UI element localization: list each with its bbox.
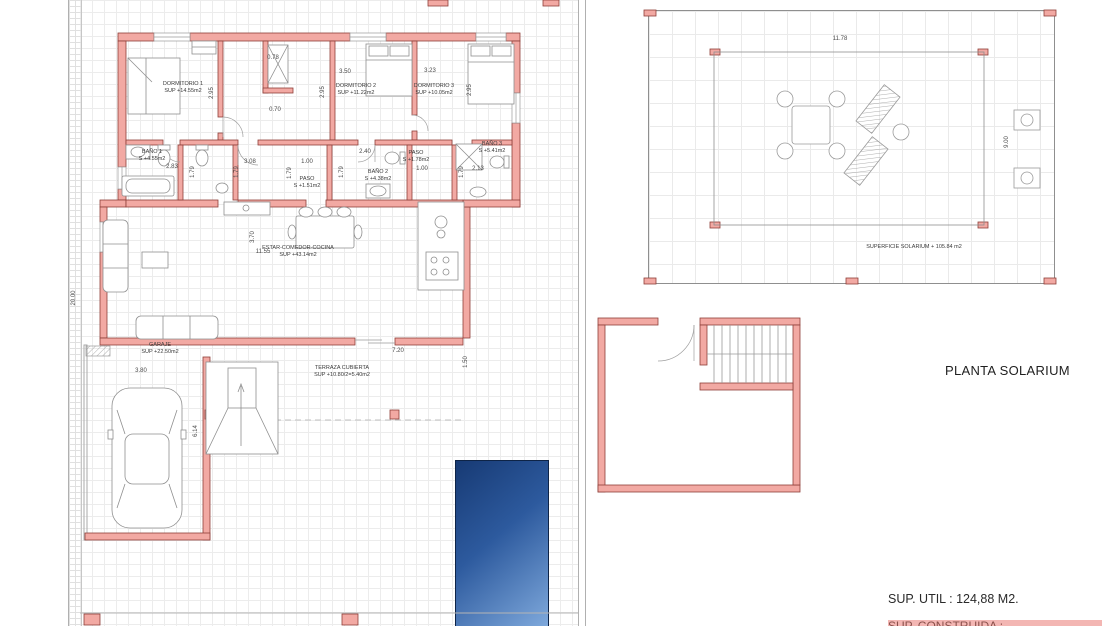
solarium-surface-label: SUPERFICIE SOLARIUM + 105.84 m2: [866, 244, 962, 250]
dimension-label: 3.70: [250, 231, 256, 243]
dimension-label: 1.79: [287, 167, 293, 179]
dimension-label: 0.70: [269, 107, 281, 113]
dimension-label: 2.40: [359, 149, 371, 155]
room-area: S +4.38m2: [365, 176, 392, 183]
dimension-label: 1.79: [339, 166, 345, 178]
dimension-label: 2.83: [166, 164, 178, 170]
room-name: BAÑO 3: [479, 141, 506, 148]
room-label-dormitorio-3: DORMITORIO 3 SUP +10.05m2: [414, 83, 454, 97]
dimension-label: 2.13: [472, 166, 484, 172]
room-name: GARAJE: [141, 342, 178, 349]
sup-util-text: SUP. UTIL : 124,88 M2.: [888, 592, 1019, 606]
dimension-label: 1.79: [459, 166, 465, 178]
dimension-label: 2.95: [320, 86, 326, 98]
room-name: DORMITORIO 2: [336, 83, 376, 90]
plan-title-solarium: PLANTA SOLARIUM: [945, 363, 1070, 378]
furniture-ground-floor: [103, 41, 514, 528]
room-label-paso-1: PASO S +1.51m2: [294, 176, 321, 190]
room-label-garaje: GARAJE SUP +22.50m2: [141, 342, 178, 356]
room-label-bano-3: BAÑO 3 S +5.41m2: [479, 141, 506, 155]
room-label-paso-2: PASO S +1.78m2: [403, 150, 430, 164]
room-name: PASO: [294, 176, 321, 183]
room-label-terraza-cubierta: TERRAZA CUBIERTA SUP +10.80/2=5.40m2: [314, 365, 370, 379]
room-label-bano-2: BAÑO 2 S +4.38m2: [365, 169, 392, 183]
room-area: SUP +10.05m2: [414, 90, 454, 97]
dimension-label: 11.55: [256, 249, 271, 255]
dimension-label: 20.00: [71, 290, 77, 305]
dimension-label: 3.08: [244, 159, 256, 165]
sup-construida-highlight: SUP. CONSTRUIDA :: [888, 620, 1102, 626]
room-area: SUP +10.80/2=5.40m2: [314, 372, 370, 379]
room-label-estar-comedor-cocina: ESTAR-COMEDOR-COCINA SUP +43.14m2: [262, 245, 334, 259]
room-name: PASO: [403, 150, 430, 157]
dimension-label: 1.00: [301, 159, 313, 165]
dimension-label: 2.95: [209, 87, 215, 99]
dimension-label: 3.80: [135, 368, 147, 374]
floorplan-sheet: DORMITORIO 1 SUP +14.55m2 DORMITORIO 2 S…: [0, 0, 1110, 626]
room-area: S +1.78m2: [403, 157, 430, 164]
dimension-label: 6.14: [193, 425, 199, 437]
room-name: BAÑO 1: [139, 149, 166, 156]
room-label-bano-1: BAÑO 1 S +4.55m2: [139, 149, 166, 163]
dimension-label: 9.00: [1004, 136, 1010, 148]
room-name: BAÑO 2: [365, 169, 392, 176]
room-area: SUP +22.50m2: [141, 349, 178, 356]
room-area: S +5.41m2: [479, 148, 506, 155]
room-name: TERRAZA CUBIERTA: [314, 365, 370, 372]
dimension-label: 2.95: [467, 84, 473, 96]
dimension-label: 11.78: [833, 36, 848, 42]
room-area: S +4.55m2: [139, 156, 166, 163]
dimension-label: 7.20: [392, 348, 404, 354]
solarium-roof-plan: [707, 52, 1040, 383]
room-area: SUP +14.55m2: [163, 88, 203, 95]
room-label-dormitorio-1: DORMITORIO 1 SUP +14.55m2: [163, 81, 203, 95]
dimension-label: 1.00: [416, 166, 428, 172]
room-area: SUP +11.22m2: [336, 90, 376, 97]
dimension-label: 1.50: [463, 356, 469, 368]
room-name: DORMITORIO 1: [163, 81, 203, 88]
room-name: DORMITORIO 3: [414, 83, 454, 90]
room-name: ESTAR-COMEDOR-COCINA: [262, 245, 334, 252]
dimension-label: 1.79: [190, 166, 196, 178]
wall-stubs: [84, 0, 1056, 625]
room-area: SUP +43.14m2: [262, 252, 334, 259]
dimension-label: 3.23: [424, 68, 436, 74]
room-area: S +1.51m2: [294, 183, 321, 190]
room-label-dormitorio-2: DORMITORIO 2 SUP +11.22m2: [336, 83, 376, 97]
dimension-label: 1.79: [234, 166, 240, 178]
dimension-label: 3.50: [339, 69, 351, 75]
dimension-label: 0.78: [267, 55, 279, 61]
